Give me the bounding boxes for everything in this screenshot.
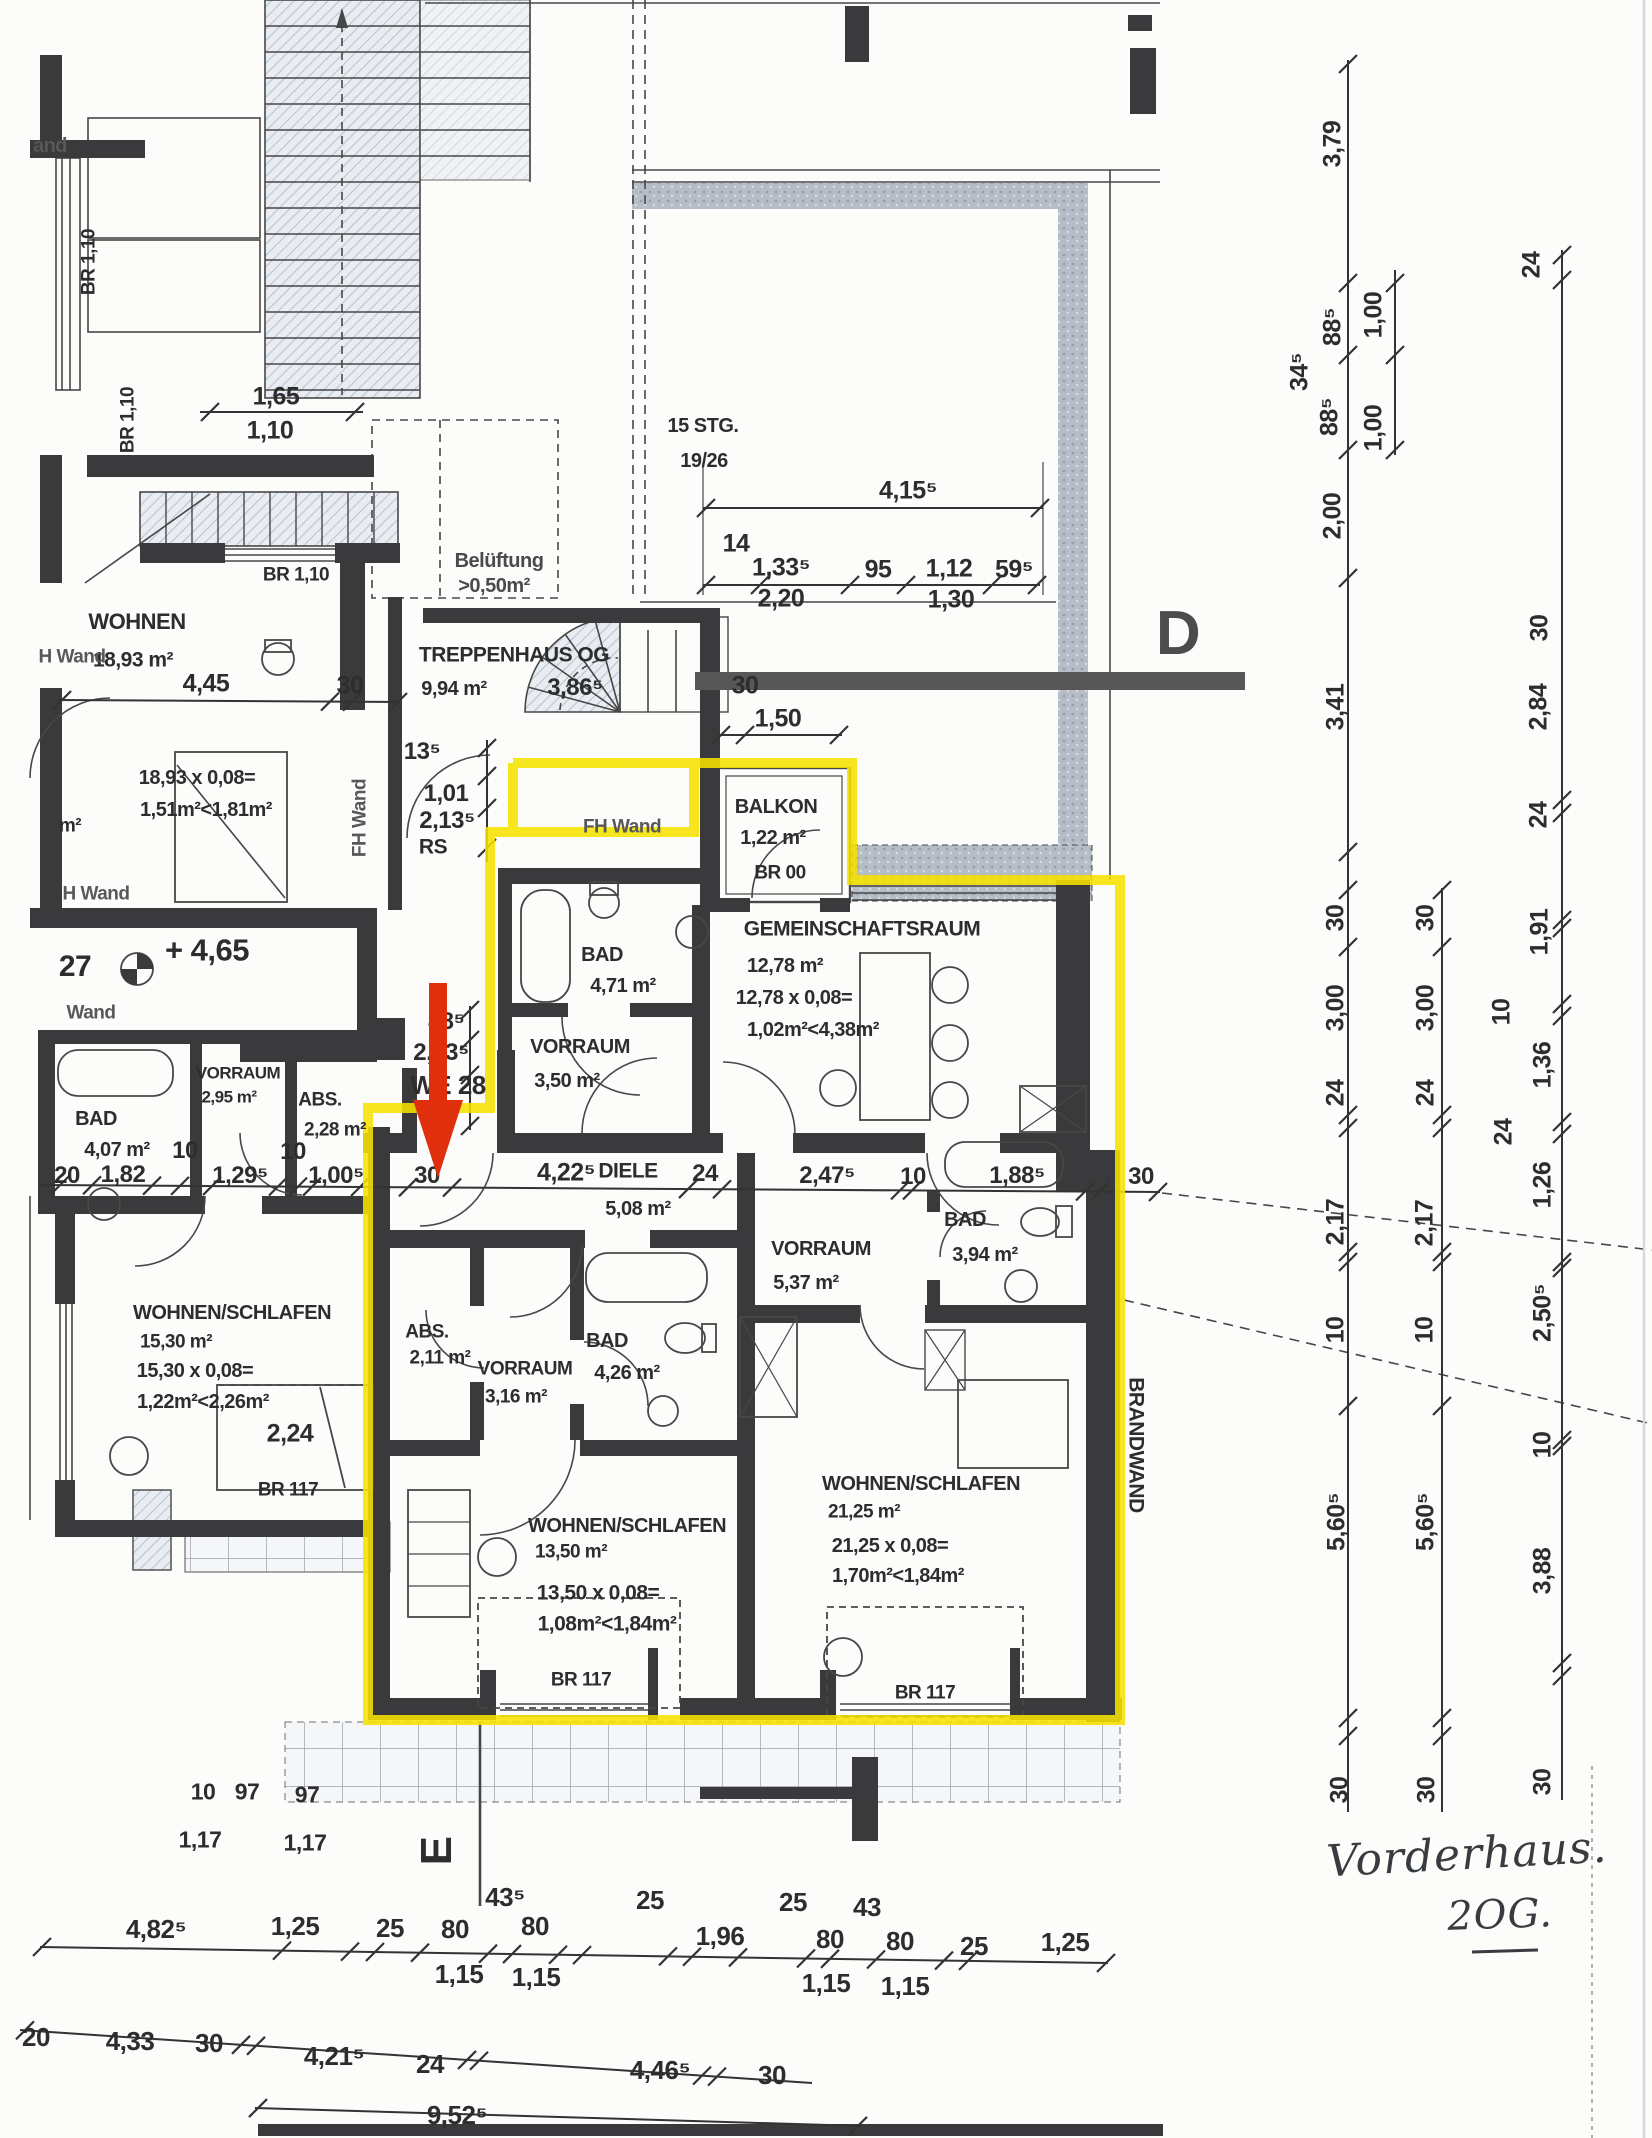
- r-30c: 30: [1414, 905, 1439, 932]
- r-388: 3,88: [1531, 1548, 1556, 1595]
- b-125b: 1,25: [1041, 1929, 1090, 1955]
- b-115a: 1,15: [435, 1961, 484, 1987]
- room-diele-area: 5,08 m²: [605, 1199, 670, 1219]
- room-ws1350-area: 13,50 m²: [535, 1543, 607, 1562]
- r-30f: 30: [1531, 1769, 1556, 1796]
- dim-885we: 88⁵: [428, 1010, 464, 1034]
- bl-97a: 97: [235, 1781, 260, 1804]
- room-bad407-area: 4,07 m²: [84, 1140, 149, 1160]
- c-4215: 4,21⁵: [304, 2043, 364, 2069]
- dim-4155: 4,15⁵: [879, 479, 937, 504]
- big-d: D: [1156, 603, 1200, 665]
- r-284: 2,84: [1527, 684, 1552, 731]
- dim-445: 4,45: [183, 672, 230, 697]
- r-10d: 10: [1531, 1432, 1556, 1459]
- room-vorraum537: VORRAUM: [771, 1239, 871, 1259]
- br117-a: BR 117: [258, 1481, 318, 1500]
- br110-v1: BR 1,10: [80, 229, 99, 295]
- dim-101: 1,01: [424, 782, 469, 806]
- dim-130: 1,30: [928, 588, 975, 613]
- graum-calc2: 1,02m²<4,38m²: [747, 1020, 879, 1040]
- r-10b: 10: [1324, 1317, 1349, 1344]
- dim-595: 59⁵: [995, 558, 1033, 583]
- r-885b: 88⁵: [1318, 398, 1343, 436]
- room-abs228-area: 2,28 m²: [304, 1121, 366, 1140]
- r-191: 1,91: [1528, 909, 1553, 956]
- ws1350-calc1: 13,50 x 0,08=: [537, 1583, 660, 1604]
- dim-110: 1,10: [247, 419, 294, 444]
- room-treppenhaus: TREPPENHAUS OG: [419, 645, 609, 666]
- ws2125-calc1: 21,25 x 0,08=: [832, 1536, 948, 1556]
- dim-135: 13⁵: [404, 740, 440, 764]
- dim-1885: 1,88⁵: [989, 1164, 1044, 1188]
- room-vorraum316: VORRAUM: [478, 1360, 573, 1379]
- c-20: 20: [22, 2024, 50, 2050]
- c-9525: 9,52⁵: [427, 2102, 487, 2128]
- dim-3865: 3,86⁵: [547, 676, 602, 700]
- wohnen-calc1: 18,93 x 0,08=: [139, 768, 255, 788]
- room-graum: GEMEINSCHAFTSRAUM: [744, 919, 981, 940]
- labels-layer: andBR 1,10BR 1,101,651,10BR 1,10WOHNEN18…: [0, 0, 1652, 2138]
- room-abs228: ABS.: [298, 1091, 341, 1110]
- b-25d: 25: [960, 1933, 988, 1959]
- bl-10: 10: [191, 1781, 216, 1804]
- r-200: 2,00: [1321, 493, 1346, 540]
- b-115b: 1,15: [512, 1964, 561, 1990]
- wand-cut: and: [33, 136, 67, 156]
- b-115c: 1,15: [802, 1970, 851, 1996]
- b-80a: 80: [441, 1916, 469, 1942]
- belueftung-2: >0,50m²: [458, 576, 530, 596]
- room-abs211-area: 2,11 m²: [410, 1349, 471, 1368]
- r-30e: 30: [1415, 1777, 1440, 1804]
- room-wohnen: WOHNEN: [88, 611, 185, 633]
- room-vorraum537-area: 5,37 m²: [773, 1273, 838, 1293]
- dim-30a: 30: [337, 674, 364, 699]
- room-bad394-area: 3,94 m²: [952, 1245, 1017, 1265]
- c-433: 4,33: [106, 2028, 155, 2054]
- r-217a: 2,17: [1324, 1199, 1349, 1246]
- bl-117b: 1,17: [284, 1832, 327, 1855]
- b-25a: 25: [376, 1915, 404, 1941]
- dim-10b: 10: [172, 1139, 198, 1163]
- dim-2135b: 2,13⁵: [413, 1041, 468, 1065]
- dim-2475: 2,47⁵: [799, 1164, 854, 1188]
- dim-30b: 30: [732, 674, 759, 699]
- handwriting-1: Vorderhaus.: [1326, 1826, 1609, 1885]
- hwand-2: H Wand: [62, 885, 129, 904]
- r-10c: 10: [1413, 1317, 1438, 1344]
- r-126: 1,26: [1531, 1162, 1556, 1209]
- dim-10c: 10: [900, 1165, 926, 1189]
- r-300a: 3,00: [1324, 985, 1349, 1032]
- wand-2: Wand: [66, 1004, 115, 1023]
- brandwand: BRANDWAND: [1126, 1377, 1147, 1513]
- r-10a: 10: [1490, 999, 1515, 1026]
- room-bad471: BAD: [581, 945, 623, 965]
- r-24d: 24: [1492, 1119, 1517, 1146]
- dim-112: 1,12: [926, 557, 973, 582]
- room-graum-area: 12,78 m²: [747, 956, 823, 976]
- level-465: + 4,65: [165, 935, 249, 966]
- dim-20: 20: [54, 1164, 80, 1188]
- b-80c: 80: [816, 1926, 844, 1952]
- bl-117a: 1,17: [179, 1829, 222, 1852]
- c-4465: 4,46⁵: [630, 2057, 690, 2083]
- belueftung-1: Belüftung: [455, 551, 544, 571]
- dim-1295: 1,29⁵: [212, 1164, 267, 1188]
- b-25b: 25: [636, 1887, 664, 1913]
- r-345: 34⁵: [1288, 353, 1313, 391]
- r-300b: 3,00: [1414, 985, 1439, 1032]
- fhwand-h: FH Wand: [583, 818, 661, 837]
- room-ws1530: WOHNEN/SCHLAFEN: [133, 1303, 331, 1323]
- dim-165: 1,65: [253, 385, 300, 410]
- room-bad407: BAD: [75, 1109, 117, 1129]
- r-136: 1,36: [1531, 1042, 1556, 1089]
- graum-calc1: 12,78 x 0,08=: [736, 988, 852, 1008]
- room-ws2125-area: 21,25 m²: [828, 1503, 900, 1522]
- room-balkon: BALKON: [735, 797, 818, 817]
- dim-150: 1,50: [755, 707, 802, 732]
- c-24: 24: [416, 2051, 444, 2077]
- r-5605b: 5,60⁵: [1414, 1493, 1439, 1551]
- ws2125-calc2: 1,70m²<1,84m²: [832, 1566, 964, 1586]
- b-196: 1,96: [696, 1923, 745, 1949]
- dim-1335: 1,33⁵: [752, 556, 810, 581]
- dim-14: 14: [723, 532, 750, 557]
- r-341: 3,41: [1324, 684, 1349, 731]
- room-ws1530-area: 15,30 m²: [140, 1333, 212, 1352]
- dim-2135a: 2,13⁵: [419, 809, 474, 833]
- r-30b: 30: [1324, 905, 1349, 932]
- room-bad426-area: 4,26 m²: [594, 1363, 659, 1383]
- handwriting-2: 2OG.: [1447, 1893, 1554, 1937]
- dim-1005: 1,00⁵: [308, 1164, 363, 1188]
- r-24b: 24: [1414, 1080, 1439, 1107]
- room-bad471-area: 4,71 m²: [590, 976, 655, 996]
- room-vorraum295: VORRAUM: [196, 1065, 280, 1082]
- br110-v2: BR 1,10: [119, 387, 138, 453]
- room-balkon-area: 1,22 m²: [740, 828, 805, 848]
- b-80d: 80: [886, 1928, 914, 1954]
- r-30d: 30: [1328, 1777, 1353, 1804]
- r-30a: 30: [1528, 615, 1553, 642]
- c-30b: 30: [758, 2062, 786, 2088]
- b-43: 43: [853, 1894, 881, 1920]
- room-bad426: BAD: [586, 1331, 628, 1351]
- wohnen-calc2: 1,51m²<1,81m²: [140, 800, 272, 820]
- br00: BR 00: [754, 864, 805, 883]
- b-25c: 25: [779, 1889, 807, 1915]
- room-bad394: BAD: [944, 1210, 986, 1230]
- dim-95: 95: [865, 558, 892, 583]
- r-5605a: 5,60⁵: [1325, 1493, 1350, 1551]
- room-ws1350: WOHNEN/SCHLAFEN: [528, 1516, 726, 1536]
- dim-182: 1,82: [101, 1163, 146, 1187]
- dim-30d: 30: [1128, 1165, 1154, 1189]
- room-vorraum295-area: 2,95 m²: [201, 1089, 256, 1106]
- br117-c: BR 117: [895, 1684, 955, 1703]
- ws1530-calc1: 15,30 x 0,08=: [137, 1361, 253, 1381]
- fhwand-v: FH Wand: [351, 779, 370, 857]
- stg-2: 19/26: [680, 451, 728, 471]
- br117-b: BR 117: [551, 1671, 611, 1690]
- stg-1: 15 STG.: [668, 416, 739, 436]
- r-24a: 24: [1324, 1080, 1349, 1107]
- b-435: 43⁵: [485, 1884, 525, 1910]
- hwand-1: H Wand: [38, 648, 105, 667]
- r-885a: 88⁵: [1321, 308, 1346, 346]
- r-100a: 1,00: [1362, 292, 1387, 339]
- dim-224: 2,24: [267, 1422, 314, 1447]
- dim-220: 2,20: [758, 587, 805, 612]
- r-379: 3,79: [1321, 121, 1346, 168]
- dim-30c: 30: [414, 1164, 440, 1188]
- b-115d: 1,15: [881, 1973, 930, 1999]
- dim-4225: 4,22⁵: [537, 1161, 595, 1186]
- bl-97b: 97: [295, 1784, 320, 1807]
- r-24c: 24: [1527, 802, 1552, 829]
- dim-10a: 10: [280, 1140, 306, 1164]
- room-vorraum316-area: 3,16 m²: [485, 1388, 547, 1407]
- room-vorraum350: VORRAUM: [530, 1037, 630, 1057]
- ws1350-calc2: 1,08m²<1,84m²: [538, 1614, 677, 1635]
- unit-we28: WE 28: [410, 1072, 486, 1098]
- ws1530-calc2: 1,22m²<2,26m²: [137, 1392, 269, 1412]
- b-80b: 80: [521, 1913, 549, 1939]
- room-treppenhaus-area: 9,94 m²: [421, 679, 486, 699]
- m2-cut: m²: [59, 817, 81, 836]
- room-ws2125: WOHNEN/SCHLAFEN: [822, 1474, 1020, 1494]
- dim-27: 27: [59, 952, 91, 982]
- br110-h: BR 1,10: [263, 566, 329, 585]
- c-30a: 30: [195, 2030, 223, 2056]
- r-217b: 2,17: [1413, 1200, 1438, 1247]
- r-2505: 2,50⁵: [1531, 1284, 1556, 1342]
- dim-24a: 24: [692, 1162, 718, 1186]
- room-abs211: ABS.: [405, 1323, 448, 1342]
- rs: RS: [419, 837, 447, 858]
- section-e: E: [415, 1837, 459, 1866]
- floor-plan-page: andBR 1,10BR 1,101,651,10BR 1,10WOHNEN18…: [0, 0, 1652, 2138]
- room-vorraum350-area: 3,50 m²: [534, 1071, 599, 1091]
- room-diele: DIELE: [598, 1161, 657, 1182]
- r-24e: 24: [1520, 252, 1545, 279]
- b-4825: 4,82⁵: [126, 1916, 186, 1942]
- b-125a: 1,25: [271, 1913, 320, 1939]
- r-100b: 1,00: [1362, 405, 1387, 452]
